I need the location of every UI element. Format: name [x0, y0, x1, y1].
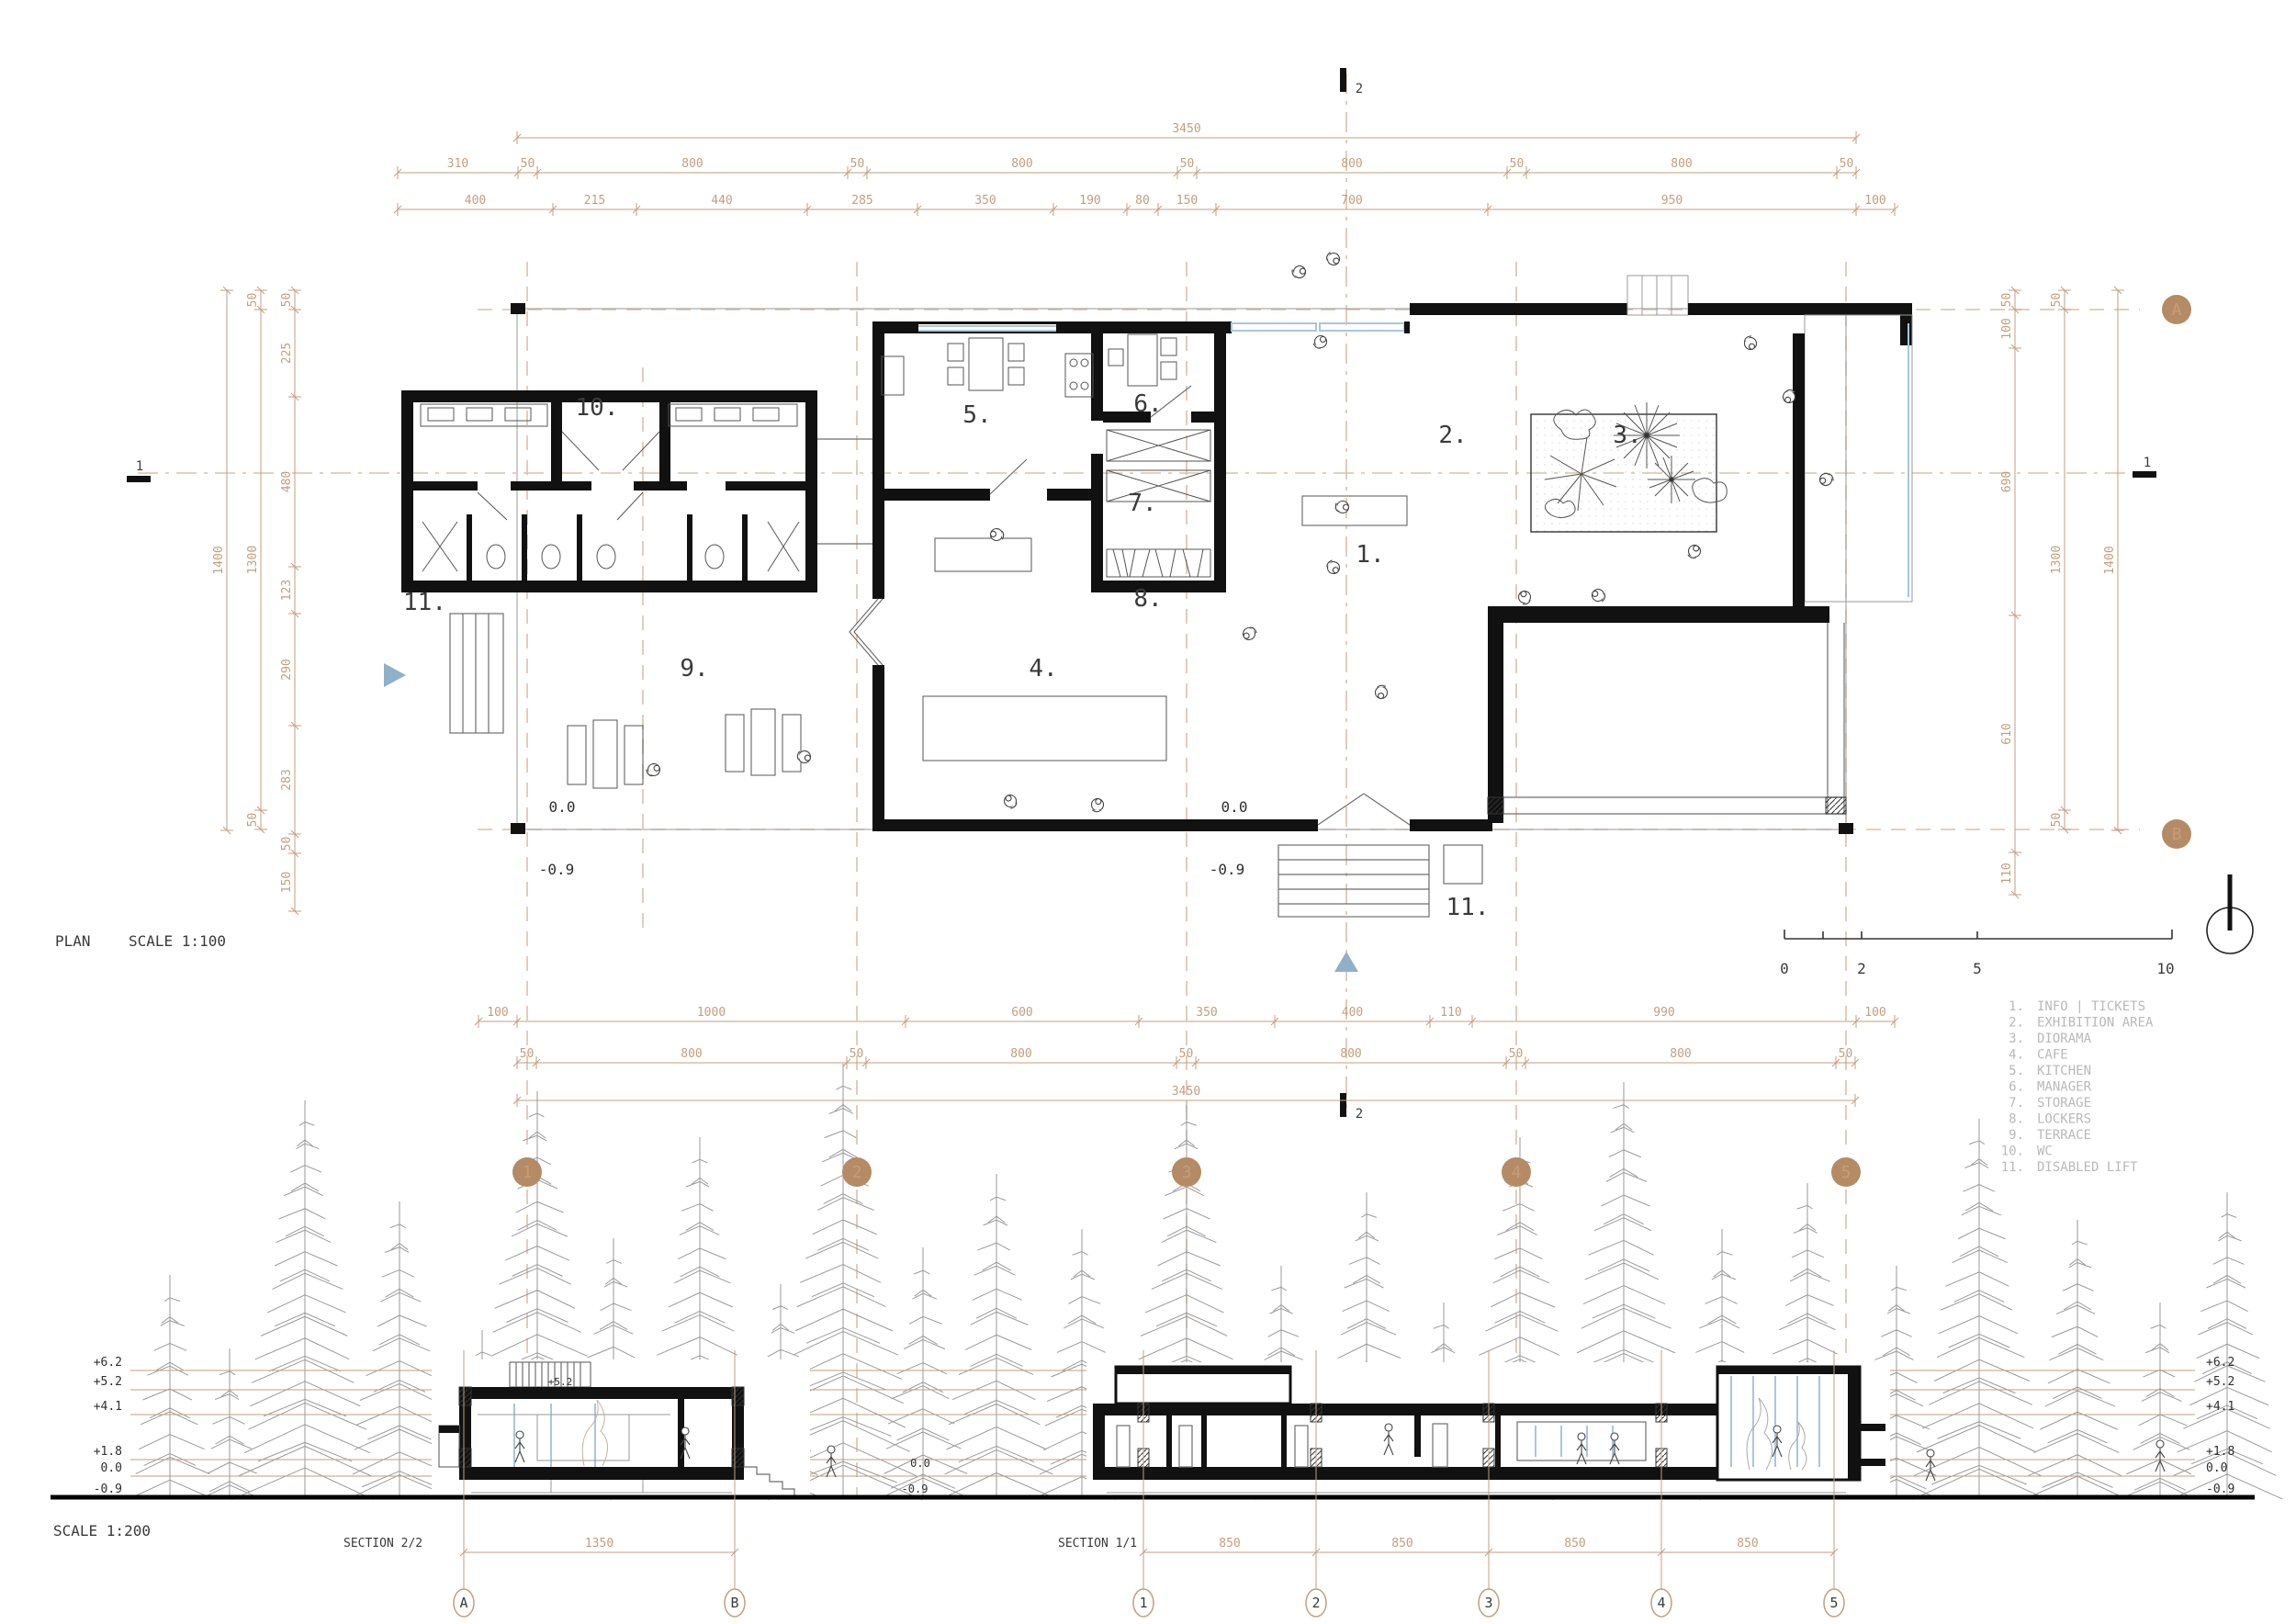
dim-label: 1400 — [212, 546, 226, 574]
level-label: -0.9 — [539, 861, 575, 878]
section-bubble-label: 1 — [1139, 1595, 1147, 1611]
pine-tree — [231, 1100, 373, 1500]
person-plan — [1289, 263, 1308, 280]
dim-label: 50 — [521, 157, 535, 171]
dim-label: 690 — [2000, 471, 2014, 492]
person-plan — [1818, 471, 1835, 488]
dim-label: 850 — [1391, 1537, 1412, 1551]
terrace-benches — [568, 709, 801, 788]
dim-label: 1000 — [697, 1006, 726, 1020]
elevation-label-left: 0.0 — [101, 1461, 122, 1475]
person-plan — [1742, 334, 1759, 351]
dim-label: 1350 — [585, 1537, 613, 1551]
text-layer: +6.2+6.2+5.2+5.2+4.1+4.1+1.8+1.80.00.0-0… — [53, 82, 2234, 1551]
dim-label: 100 — [487, 1006, 508, 1020]
room-label: 3. — [1613, 422, 1641, 449]
level-label: -0.9 — [1210, 861, 1245, 878]
dim-label: 285 — [851, 194, 872, 208]
person-plan — [1591, 588, 1607, 604]
room-label: 2. — [1438, 422, 1467, 449]
section-level-label: 0.0 — [910, 1457, 930, 1470]
elevation-label-left: +4.1 — [94, 1400, 122, 1414]
grid-bubble-label: 2 — [852, 1163, 862, 1182]
dim-label: 610 — [2000, 723, 2014, 744]
kitchen-fixtures — [882, 338, 1093, 397]
accordion-door — [850, 599, 883, 665]
pine-tree — [1912, 1119, 2047, 1499]
dim-label: 50 — [2000, 293, 2014, 308]
section-scale: SCALE 1:200 — [53, 1522, 151, 1539]
dim-label: 800 — [1670, 1047, 1691, 1061]
dim-label: 800 — [1341, 157, 1362, 171]
dim-label: 150 — [280, 872, 294, 893]
dim-label: 283 — [280, 769, 294, 790]
plan-title: PLAN — [55, 932, 91, 950]
legend-num: 10. — [2001, 1145, 2024, 1159]
dim-label: 100 — [2000, 318, 2014, 339]
north-arrow — [2207, 874, 2253, 953]
section-bubble-label: 3 — [1484, 1595, 1492, 1611]
dim-label: 150 — [1176, 194, 1198, 208]
dim-label: 50 — [520, 1047, 535, 1061]
level-label: 0.0 — [549, 798, 576, 816]
pine-tree — [2121, 1303, 2193, 1498]
section-bubble-label: B — [730, 1595, 738, 1611]
elevation-label-left: +6.2 — [94, 1356, 122, 1370]
person-plan — [795, 748, 813, 765]
level-label: 0.0 — [1221, 798, 1248, 816]
grid-bubble-label: 4 — [1512, 1163, 1522, 1182]
dim-label: 3450 — [1172, 1085, 1200, 1099]
section-bubble-label: 2 — [1311, 1595, 1320, 1611]
legend-label: DISABLED LIFT — [2037, 1160, 2138, 1175]
manager-fixtures — [1109, 334, 1176, 386]
elevation-label-right: +6.2 — [2206, 1356, 2234, 1370]
section-11-title: SECTION 1/1 — [1058, 1537, 1137, 1551]
dim-label: 350 — [1196, 1006, 1217, 1020]
cafe-tables — [923, 538, 1166, 761]
deck — [1805, 315, 1912, 602]
architectural-sheet: 3450310508005080050800508005040021544028… — [0, 0, 2296, 1624]
plan-outline — [517, 309, 1846, 829]
dim-label: 1400 — [2103, 546, 2117, 574]
dim-label: 800 — [1010, 1047, 1031, 1061]
wc-partitions — [413, 402, 805, 581]
room-label: 4. — [1029, 655, 1057, 682]
person-plan — [1325, 251, 1340, 266]
grid-bubble-label: A — [2172, 300, 2182, 320]
legend-label: STORAGE — [2037, 1096, 2091, 1111]
corridor — [817, 439, 872, 544]
person-plan — [1313, 336, 1327, 349]
dim-label: 50 — [280, 293, 294, 308]
room-label: 5. — [962, 401, 991, 429]
person-plan — [1088, 796, 1106, 814]
dim-label: 480 — [280, 471, 294, 492]
dim-label: 800 — [681, 1047, 702, 1061]
dim-label: 1300 — [2050, 546, 2064, 574]
grid-bubble-label: 1 — [523, 1163, 533, 1182]
dim-label: 225 — [280, 343, 294, 364]
legend-num: 1. — [2009, 999, 2024, 1014]
scalebar-label: 0 — [1780, 960, 1789, 977]
legend-label: LOCKERS — [2037, 1112, 2091, 1127]
person-plan — [1003, 794, 1018, 809]
dim-label: 440 — [711, 194, 732, 208]
dim-label: 600 — [1011, 1006, 1032, 1020]
person-plan — [988, 526, 1006, 545]
dim-label: 110 — [1440, 1006, 1461, 1020]
dim-label: 110 — [2000, 863, 2014, 884]
dim-label: 50 — [850, 1047, 864, 1061]
dim-label: 100 — [1864, 194, 1885, 208]
dim-label: 190 — [1079, 194, 1100, 208]
dim-label: 990 — [1653, 1006, 1674, 1020]
section-level-label: +5.2 — [548, 1376, 573, 1388]
storage-lockers — [1107, 430, 1210, 577]
dim-label: 50 — [2050, 813, 2064, 828]
scale-bar — [1784, 930, 2172, 939]
person-plan — [1372, 682, 1390, 701]
elevation-label-left: +1.8 — [94, 1445, 122, 1459]
dim-label: 80 — [1135, 194, 1150, 208]
annex-thin-walls — [1503, 623, 1846, 814]
legend-label: EXHIBITION AREA — [2037, 1016, 2154, 1031]
pine-tree — [2025, 1220, 2126, 1499]
legend-num: 5. — [2009, 1064, 2024, 1078]
dim-label: 215 — [584, 194, 605, 208]
room-label: 11. — [403, 589, 446, 616]
dim-label: 400 — [465, 194, 486, 208]
grid-lines — [138, 73, 2144, 1495]
legend-label: MANAGER — [2037, 1080, 2092, 1095]
entry-arrow-south — [1334, 952, 1358, 972]
legend-num: 7. — [2009, 1096, 2024, 1111]
cut-marker-label: 1 — [2144, 456, 2151, 470]
dim-label: 50 — [1509, 1047, 1524, 1061]
elevation-label-left: +5.2 — [94, 1375, 122, 1389]
dim-label: 50 — [246, 813, 260, 828]
room-label: 10. — [576, 394, 619, 422]
dim-label: 950 — [1661, 194, 1683, 208]
room-label: 11. — [1446, 894, 1490, 921]
legend-label: INFO | TICKETS — [2037, 999, 2145, 1014]
cut-marker-label: 2 — [1356, 1107, 1363, 1122]
dim-label: 290 — [280, 659, 294, 680]
elevation-label-right: -0.9 — [2206, 1483, 2234, 1496]
info-desk — [1302, 496, 1407, 525]
legend-num: 11. — [2001, 1160, 2024, 1175]
grid-bubble-label: 3 — [1182, 1163, 1192, 1182]
elevation-label-left: -0.9 — [94, 1483, 122, 1496]
elevation-label-right: +5.2 — [2206, 1375, 2234, 1389]
scalebar-label: 5 — [1973, 960, 1982, 977]
dim-label: 310 — [447, 157, 468, 171]
legend-label: KITCHEN — [2037, 1064, 2091, 1078]
legend-label: DIORAMA — [2037, 1032, 2092, 1046]
person-plan — [645, 762, 661, 778]
elevation-label-right: +4.1 — [2206, 1400, 2234, 1414]
legend-num: 2. — [2009, 1016, 2024, 1031]
cut-marker-label: 2 — [1356, 82, 1363, 96]
scalebar-label: 2 — [1857, 960, 1866, 977]
drawing-canvas: 3450310508005080050800508005040021544028… — [0, 0, 2296, 1624]
people — [515, 251, 2165, 1481]
grid-bubble-label: B — [2172, 825, 2182, 844]
person-plan — [1333, 498, 1351, 516]
elevation-label-right: 0.0 — [2206, 1461, 2227, 1475]
dim-label: 50 — [1839, 1047, 1853, 1061]
dim-label: 50 — [246, 293, 260, 308]
dim-label: 50 — [1180, 157, 1195, 171]
section-level-label: -0.9 — [902, 1483, 929, 1495]
plan-scale: SCALE 1:100 — [129, 932, 226, 950]
legend-num: 8. — [2009, 1112, 2024, 1127]
section-bubble-label: 4 — [1657, 1595, 1665, 1611]
entrance-door-leaf — [1232, 323, 1316, 331]
person-plan — [1686, 544, 1703, 559]
grid-bubble-label: 5 — [1841, 1163, 1851, 1182]
elevation-label-right: +1.8 — [2206, 1445, 2234, 1459]
dim-label: 800 — [1340, 1047, 1361, 1061]
room-label: 6. — [1133, 390, 1162, 418]
main-entrance-doors — [1318, 794, 1410, 825]
pine-tree — [129, 1275, 212, 1498]
dim-label: 850 — [1219, 1537, 1240, 1551]
dim-label: 50 — [280, 837, 294, 851]
kitchen-door — [990, 459, 1027, 494]
dim-label: 800 — [681, 157, 703, 171]
cut-marker-label: 1 — [136, 459, 143, 474]
pine-tree — [940, 1174, 1057, 1499]
dim-label: 400 — [1342, 1006, 1363, 1020]
dim-label: 50 — [1840, 157, 1854, 171]
legend-num: 9. — [2009, 1128, 2024, 1143]
scalebar-label: 10 — [2156, 960, 2174, 977]
legend-label: WC — [2037, 1145, 2053, 1159]
dim-label: 50 — [1510, 157, 1525, 171]
person-plan — [1243, 626, 1257, 641]
dim-label: 50 — [2050, 293, 2064, 308]
section-bubble-label: A — [459, 1595, 467, 1611]
dim-label: 350 — [974, 194, 996, 208]
section-22-title: SECTION 2/2 — [343, 1537, 422, 1551]
dim-label: 100 — [1864, 1006, 1885, 1020]
legend-num: 3. — [2009, 1032, 2024, 1046]
room-label: 8. — [1133, 585, 1162, 613]
entrance-door-leaf — [1320, 323, 1404, 331]
dim-label: 850 — [1564, 1537, 1585, 1551]
stairs-left — [450, 614, 503, 733]
dim-label: 800 — [1671, 157, 1692, 171]
legend-label: CAFE — [2037, 1048, 2068, 1063]
dim-label: 50 — [1179, 1047, 1194, 1061]
dim-label: 1300 — [246, 546, 260, 574]
dim-label: 3450 — [1172, 122, 1200, 136]
room-label: 7. — [1128, 490, 1156, 517]
room-label: 9. — [680, 655, 708, 682]
dim-label: 800 — [1011, 157, 1032, 171]
legend-label: TERRACE — [2037, 1128, 2091, 1143]
dim-label: 123 — [280, 580, 294, 601]
dim-label: 50 — [850, 157, 865, 171]
section-bubble-label: 5 — [1829, 1595, 1838, 1611]
room-label: 1. — [1356, 541, 1384, 569]
person-plan — [1326, 560, 1340, 574]
legend-num: 6. — [2009, 1080, 2024, 1095]
dim-label: 700 — [1341, 194, 1362, 208]
legend-num: 4. — [2009, 1048, 2024, 1063]
person-plan — [1516, 589, 1534, 606]
dim-label: 850 — [1737, 1537, 1758, 1551]
entry-arrow-west — [384, 663, 406, 687]
